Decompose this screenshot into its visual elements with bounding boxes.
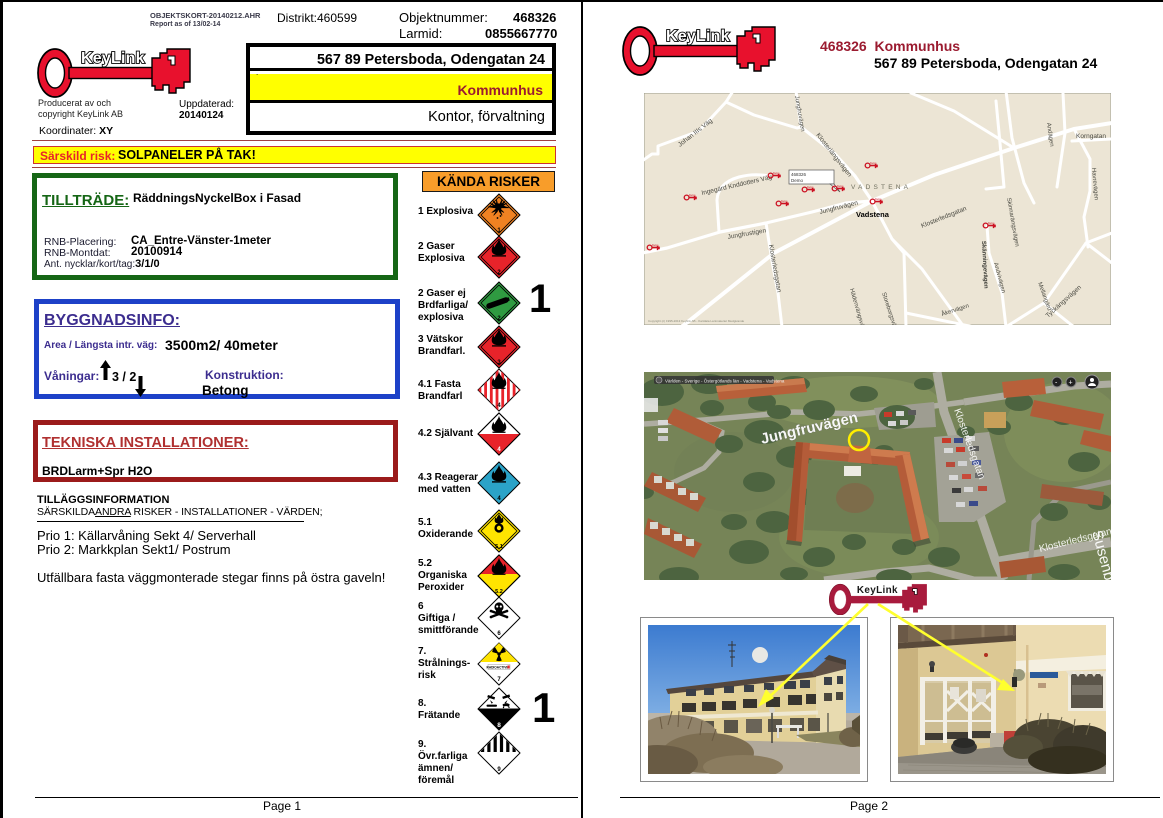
svg-text:Korngatan: Korngatan (1076, 133, 1106, 140)
svg-text:Copyright (c) 1995-2013 Keylin: Copyright (c) 1995-2013 Keylink AB - Kar… (648, 319, 745, 323)
svg-text:8: 8 (497, 722, 501, 729)
svg-text:KeyLink: KeyLink (81, 50, 145, 67)
svg-text:KeyLink: KeyLink (666, 28, 730, 45)
svg-text:Demo: Demo (791, 178, 804, 183)
svg-text:Vadstena: Vadstena (856, 210, 890, 219)
svg-text:RADIOACTIVE: RADIOACTIVE (487, 666, 509, 670)
svg-text:Världen - Sverige - Östergötla: Världen - Sverige - Östergötlands län - … (665, 378, 785, 384)
svg-text:+: + (1069, 380, 1073, 387)
svg-text:468326: 468326 (791, 172, 807, 177)
svg-text:5.1: 5.1 (495, 544, 503, 550)
svg-text:VADSTENA: VADSTENA (851, 184, 911, 191)
